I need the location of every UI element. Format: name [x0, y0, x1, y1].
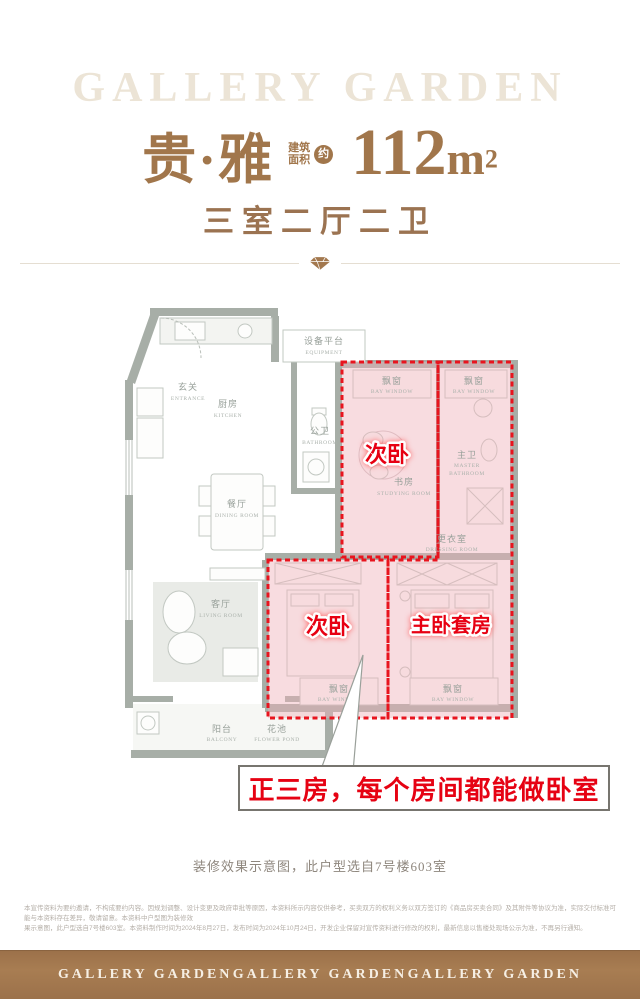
label-balcony-en: BALCONY	[207, 737, 238, 743]
layout-spec: 三室二厅二卫	[0, 196, 640, 241]
label-master-bath-cn: 主卫	[457, 449, 477, 460]
footer-logo-2: GALLERY GARDEN	[233, 967, 407, 983]
label-master-bath-en2: BATHROOM	[449, 471, 485, 477]
label-living-cn: 客厅	[211, 598, 231, 609]
entry-cabinet-2	[137, 418, 163, 458]
area-unit: m	[447, 133, 485, 184]
label-equipment-en: EQUIPMENT	[305, 350, 342, 356]
label-dressing-cn: 更衣室	[437, 533, 467, 544]
brand-watermark: GALLERY GARDEN	[0, 64, 640, 112]
area-label-line1: 建筑	[288, 142, 310, 154]
area-superscript: 2	[485, 145, 498, 174]
highlight-zones	[268, 362, 512, 718]
label-bay-window-en: BAY WINDOW	[432, 697, 475, 703]
label-kitchen-en: KITCHEN	[214, 413, 242, 419]
label-flower-pond-cn: 花池	[267, 723, 287, 734]
equipment-platform-outline	[283, 330, 365, 362]
dining-chair	[199, 486, 211, 506]
label-dining-cn: 餐厅	[227, 498, 247, 509]
title-row: 贵·雅 建筑 面积 约 112m2	[0, 116, 640, 192]
footer-logo-3: GALLERY GARDEN	[408, 967, 582, 983]
tv-bench	[210, 568, 265, 580]
sofa	[163, 591, 195, 633]
label-study-cn: 书房	[394, 476, 414, 487]
area-value: 112	[351, 116, 446, 189]
zone-second-bedroom-2	[268, 560, 388, 718]
label-equipment-cn: 设备平台	[304, 335, 344, 346]
dining-table	[211, 474, 263, 550]
approx-seal-badge: 约	[314, 145, 333, 164]
label-bay-window-cn: 飘窗	[382, 375, 402, 386]
disclaimer: 本宣传资料为要约邀请，不构成要约内容。因规划调整、设计变更及政府审批等原因，本资…	[24, 904, 616, 934]
caption: 装修效果示意图，此户型选自7号楼603室	[0, 856, 640, 875]
label-public-bath-en: BATHROOM	[302, 440, 338, 446]
highlight-second-bedroom-1: 次卧	[365, 442, 409, 467]
gem-icon	[309, 256, 331, 271]
label-study-en: STUDYING ROOM	[377, 491, 431, 497]
dining-chair	[199, 516, 211, 536]
floor-plan: 玄关 ENTRANCE 厨房 KITCHEN 设备平台 EQUIPMENT 公卫…	[115, 300, 545, 775]
label-flower-pond-en: FLOWER POND	[254, 737, 300, 743]
area-label-line2: 面积	[288, 154, 310, 166]
highlight-second-bedroom-2: 次卧	[306, 614, 350, 639]
divider	[20, 254, 620, 272]
disclaimer-line1: 本宣传资料为要约邀请，不构成要约内容。因规划调整、设计变更及政府审批等原因，本资…	[24, 904, 616, 924]
callout-text: 正三房，每个房间都能做卧室	[248, 770, 599, 807]
entry-cabinet	[137, 388, 163, 416]
area-label: 建筑 面积	[288, 142, 310, 166]
label-public-bath-cn: 公卫	[310, 426, 330, 436]
label-kitchen-cn: 厨房	[218, 398, 238, 409]
bath-basin	[308, 459, 324, 475]
kitchen-stove	[238, 324, 252, 338]
label-dining-en: DINING ROOM	[215, 513, 259, 519]
label-living-en: LIVING ROOM	[199, 613, 242, 619]
label-bay-window-cn: 飘窗	[329, 683, 349, 694]
footer-bar: GALLERY GARDEN GALLERY GARDEN GALLERY GA…	[0, 950, 640, 999]
label-balcony-cn: 阳台	[212, 723, 232, 734]
sofa-2	[168, 632, 206, 664]
apartment-name: 贵·雅	[142, 115, 274, 194]
dining-chair	[263, 486, 275, 506]
footer-logo-1: GALLERY GARDEN	[58, 967, 232, 983]
divider-line-right	[341, 263, 620, 264]
dining-chair	[263, 516, 275, 536]
label-bay-window-en: BAY WINDOW	[453, 389, 496, 395]
highlight-master-suite: 主卧套房	[411, 613, 491, 637]
callout-box: 正三房，每个房间都能做卧室	[238, 765, 610, 811]
label-bay-window-cn: 飘窗	[443, 683, 463, 694]
label-bay-window-cn: 飘窗	[464, 375, 484, 386]
label-dressing-en: DRESSING ROOM	[426, 547, 479, 553]
area-label-group: 建筑 面积 约	[288, 142, 333, 166]
label-entrance-cn: 玄关	[178, 381, 198, 392]
disclaimer-line2: 果示意图，此户型选自7号楼603室。本资料制作时间为2024年8月27日，发布时…	[24, 924, 616, 934]
divider-line-left	[20, 263, 299, 264]
label-bay-window-en: BAY WINDOW	[371, 389, 414, 395]
area-value-group: 112m2	[347, 123, 498, 185]
label-master-bath-en1: MASTER	[454, 463, 480, 469]
armchair	[223, 648, 258, 676]
washer	[137, 712, 159, 734]
label-entrance-en: ENTRANCE	[171, 396, 205, 402]
